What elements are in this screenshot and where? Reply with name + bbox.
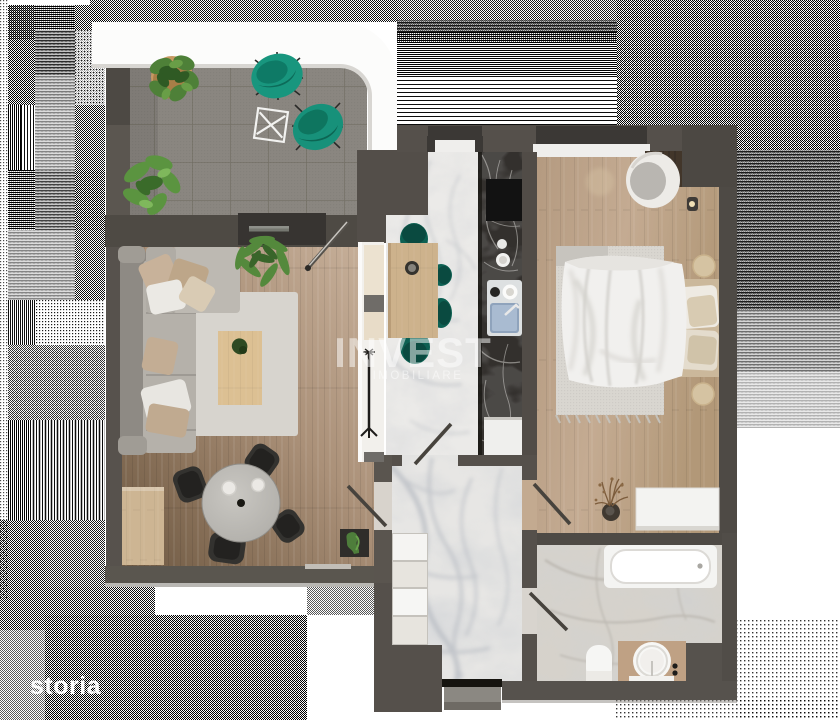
svg-text:IMOBILIARE: IMOBILIARE — [373, 370, 464, 382]
svg-text:INVEST: INVEST — [334, 329, 492, 376]
svg-text:storia: storia — [30, 672, 102, 700]
